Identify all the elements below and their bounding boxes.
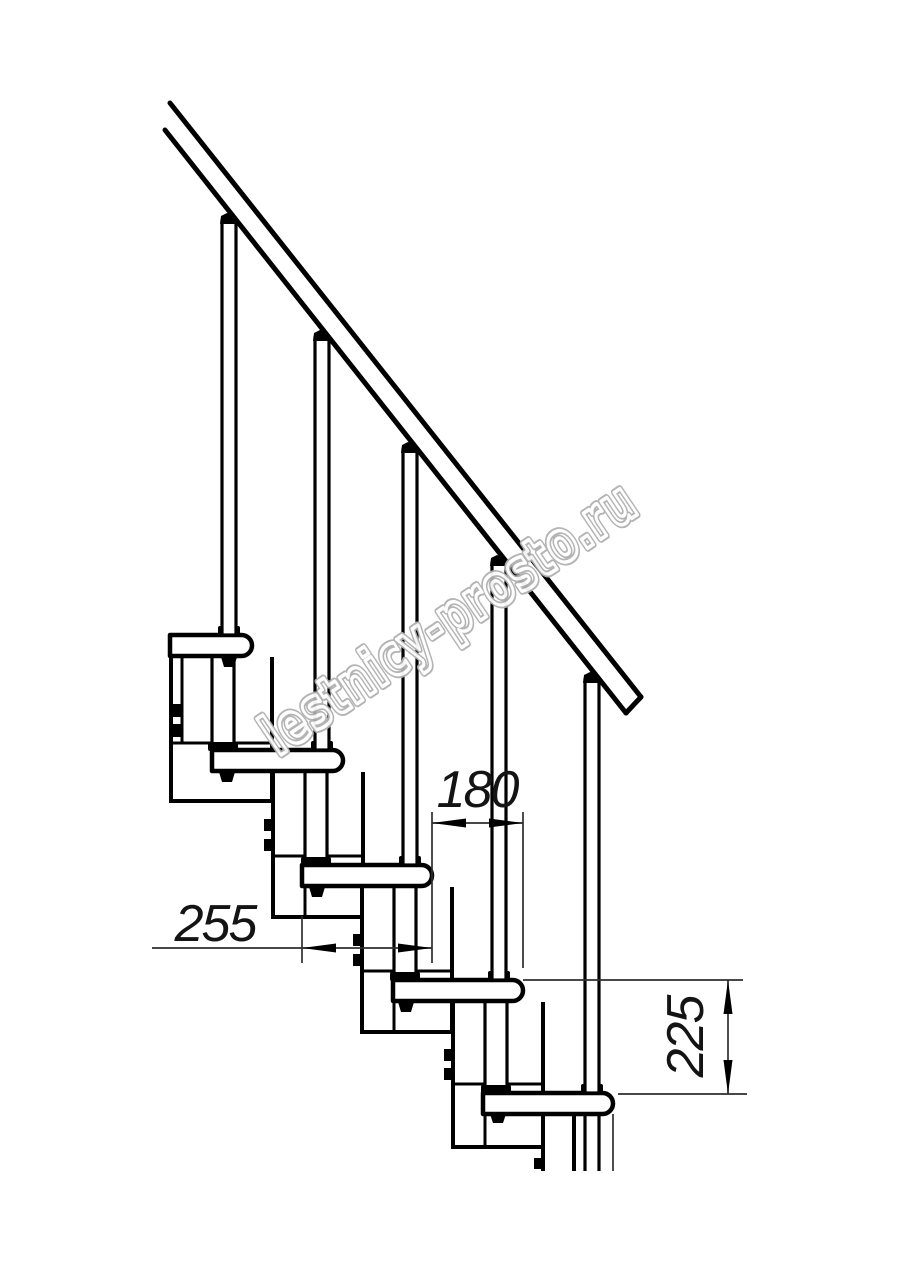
module-box-edges [543,1114,574,1171]
bolt-tab [172,724,183,737]
tread-3 [302,865,432,886]
dimension-label-225: 225 [657,994,715,1079]
bolt-tab [444,1068,454,1080]
support-tube-4 [485,1001,507,1093]
baluster-5 [585,680,599,1093]
tread-5 [483,1093,613,1114]
handrail-end-cap [626,697,641,713]
bolt-tab [264,819,274,831]
arrowhead-left [302,944,336,953]
bolt-tab [353,934,363,946]
bolt-tab [353,954,363,966]
arrowhead-down [724,1060,733,1094]
baluster-1 [222,221,236,635]
bolt-tab [172,704,183,717]
arrowhead-up [724,980,733,1014]
tread-1 [170,635,252,656]
dimension-riser-height: 225 [523,980,747,1094]
bolt-tab [444,1049,454,1061]
dimension-label-180: 180 [437,761,520,819]
dimension-label-255: 255 [174,895,259,953]
support-tube-1 [212,656,234,750]
support-tube-3 [394,886,416,980]
staircase-drawing: lestnicy-prosto.ru lestnicy-prosto.ru 18… [0,0,914,1280]
support-tube-2 [305,771,327,865]
arrowhead-left [432,819,466,828]
bolt-tab [534,1158,544,1169]
tread-4 [393,980,523,1001]
bolt-tab [264,839,274,851]
support-tube-5 [585,1114,599,1171]
